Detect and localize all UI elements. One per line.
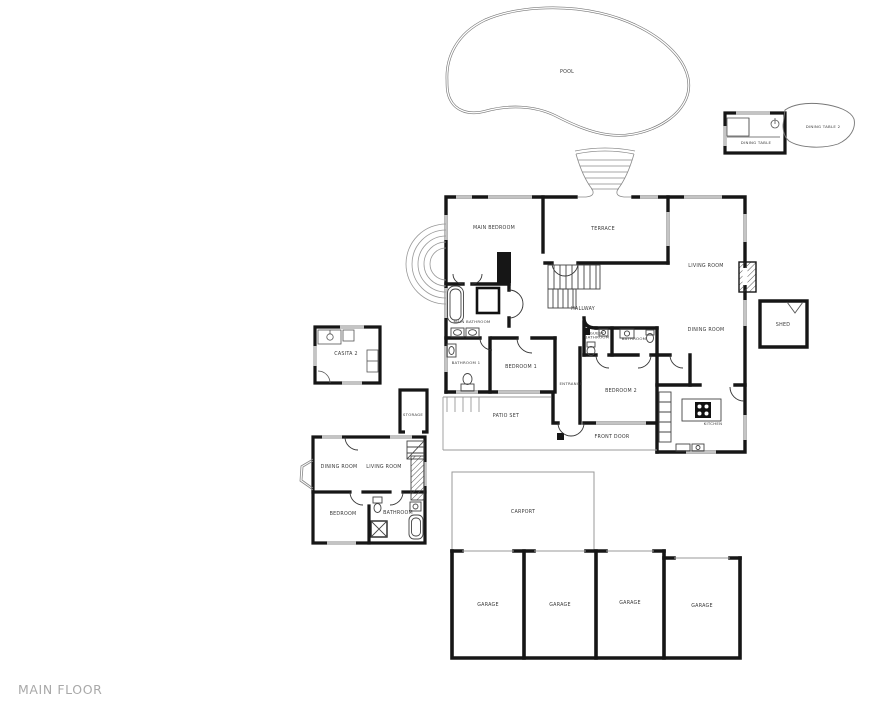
label-carport: CARPORT <box>511 510 535 516</box>
label-kitchen: KITCHEN <box>704 422 723 426</box>
guest-house-bay-window <box>300 459 313 490</box>
label-patio-set: PATIO SET <box>493 414 519 420</box>
label-terrace: TERRACE <box>591 227 615 233</box>
label-guest-bathroom: GUEST BATHROOM <box>582 332 612 341</box>
label-bedroom-1: BEDROOM 1 <box>505 365 537 371</box>
label-entrance: ENTRANCE <box>559 382 582 386</box>
bathroom1-fixtures <box>447 344 474 391</box>
dining-table-room <box>725 113 785 153</box>
label-living-room: LIVING ROOM <box>688 264 723 270</box>
main-bathroom-fixtures <box>448 286 500 337</box>
staircase <box>548 265 600 308</box>
label-shed: SHED <box>776 323 790 329</box>
label-dining-table: DINING TABLE <box>741 141 771 145</box>
label-bathroom-1: BATHROOM 1 <box>452 361 481 365</box>
label-garage-3: GARAGE <box>619 601 641 607</box>
label-dining-table-2: DINING TABLE 2 <box>806 125 841 129</box>
label-bedroom-2: BEDROOM 2 <box>605 389 637 395</box>
fireplace <box>739 262 756 292</box>
label-gh-dining-room: DINING ROOM <box>321 465 358 471</box>
label-casita-2: CASITA 2 <box>334 352 358 358</box>
label-storage: STORAGE <box>403 413 423 417</box>
label-gh-bathroom: BATHROOM <box>383 511 413 517</box>
label-main-bathroom: MAIN BATHROOM <box>453 320 490 324</box>
floor-plan: POOL DINING TABLE DINING TABLE 2 SHED MA… <box>0 0 880 712</box>
label-bathroom: BATHROOM <box>622 337 647 341</box>
guest-house-fixtures <box>371 441 424 539</box>
label-dining-room: DINING ROOM <box>688 328 725 334</box>
label-hallway: HALLWAY <box>571 307 595 313</box>
terrace-steps <box>520 148 700 197</box>
guest-house-doors <box>345 437 403 505</box>
label-garage-1: GARAGE <box>477 603 499 609</box>
label-gh-living-room: LIVING ROOM <box>366 465 401 471</box>
curved-patio-steps <box>406 224 446 304</box>
wall-chunks <box>497 252 590 440</box>
label-garage-4: GARAGE <box>691 604 713 610</box>
label-gh-bedroom: BEDROOM <box>330 512 357 518</box>
label-pool: POOL <box>560 70 574 76</box>
label-garage-2: GARAGE <box>549 603 571 609</box>
floorplan-drawing <box>0 0 880 712</box>
label-front-door: FRONT DOOR <box>595 435 630 441</box>
label-main-bedroom: MAIN BEDROOM <box>473 226 515 232</box>
floor-title: MAIN FLOOR <box>18 682 102 697</box>
